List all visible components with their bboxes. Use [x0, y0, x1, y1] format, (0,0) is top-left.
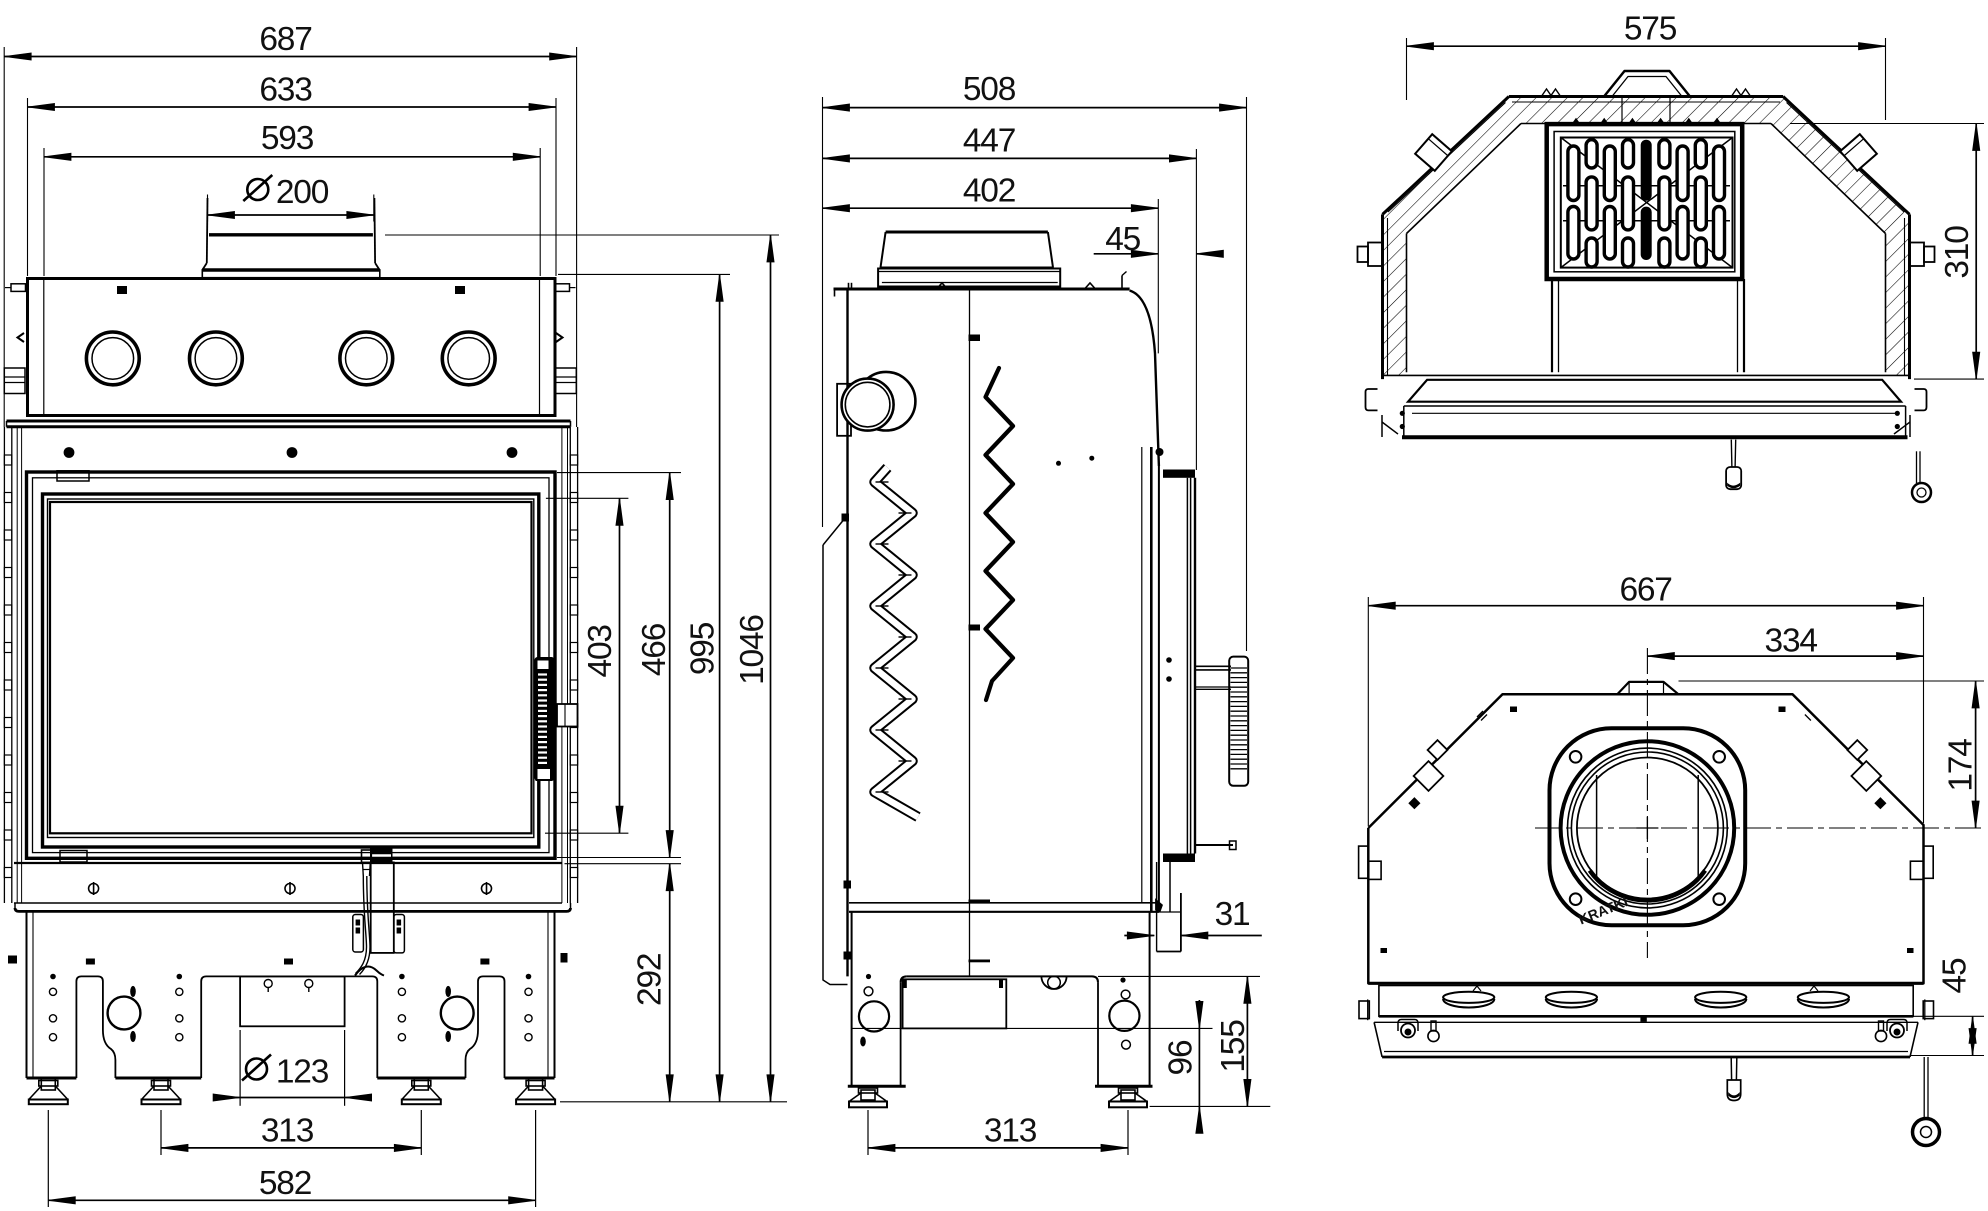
svg-text:447: 447: [963, 123, 1015, 160]
svg-text:313: 313: [261, 1113, 314, 1150]
svg-text:575: 575: [1624, 11, 1677, 48]
svg-text:334: 334: [1765, 623, 1818, 660]
svg-text:31: 31: [1215, 896, 1250, 933]
svg-text:687: 687: [259, 21, 311, 58]
svg-text:1046: 1046: [734, 615, 771, 685]
svg-text:593: 593: [261, 120, 314, 157]
svg-text:292: 292: [632, 954, 669, 1006]
svg-text:155: 155: [1215, 1020, 1252, 1073]
svg-text:174: 174: [1943, 739, 1980, 792]
svg-text:667: 667: [1619, 572, 1671, 609]
svg-text:466: 466: [636, 623, 673, 676]
svg-text:45: 45: [1105, 221, 1140, 258]
svg-text:508: 508: [963, 71, 1016, 108]
svg-text:582: 582: [259, 1165, 311, 1202]
svg-text:403: 403: [582, 625, 619, 678]
svg-text:313: 313: [984, 1113, 1037, 1150]
svg-text:123: 123: [276, 1054, 329, 1091]
svg-text:200: 200: [276, 174, 329, 211]
svg-text:45: 45: [1937, 958, 1974, 993]
svg-text:633: 633: [259, 72, 312, 109]
svg-text:96: 96: [1163, 1040, 1200, 1075]
svg-text:995: 995: [684, 622, 721, 675]
svg-text:402: 402: [963, 173, 1015, 210]
svg-text:310: 310: [1939, 226, 1976, 279]
